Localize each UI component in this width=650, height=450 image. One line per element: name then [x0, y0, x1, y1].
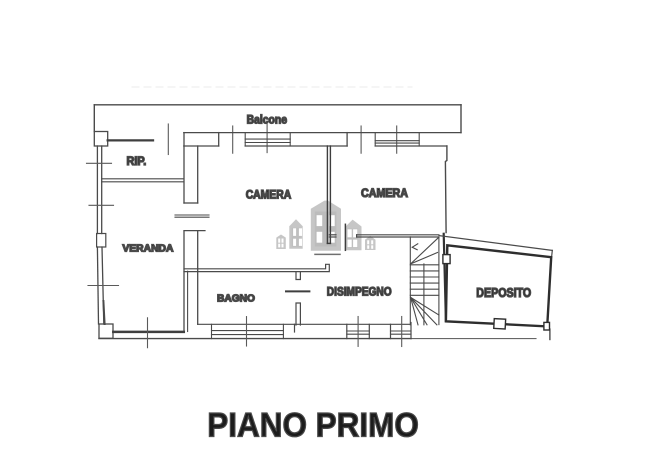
svg-text:CAMERA: CAMERA [361, 188, 408, 200]
svg-text:VERANDA: VERANDA [122, 244, 173, 255]
svg-text:BAGNO: BAGNO [217, 294, 255, 305]
svg-text:PIANO PRIMO: PIANO PRIMO [207, 407, 418, 445]
svg-text:Balcone: Balcone [247, 115, 287, 127]
svg-text:CAMERA: CAMERA [246, 190, 292, 202]
svg-text:DEPOSITO: DEPOSITO [476, 286, 531, 300]
svg-text:RIP.: RIP. [127, 156, 147, 168]
svg-text:DISIMPEGNO: DISIMPEGNO [327, 286, 392, 298]
